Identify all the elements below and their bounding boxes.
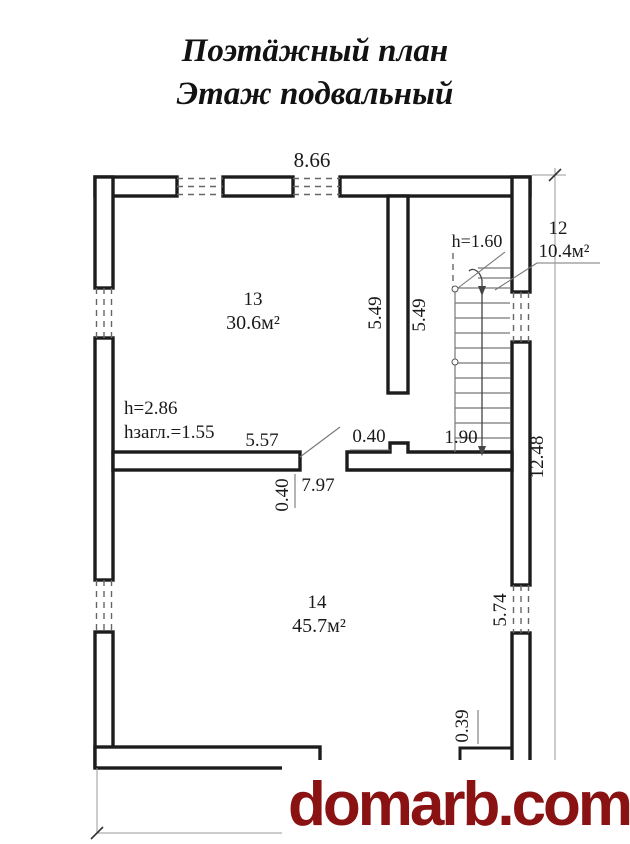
page-title-line1: Поэтäжный план (55, 33, 575, 70)
wall-right-seg1 (512, 177, 530, 292)
dim-opening-width: 0.40 (345, 427, 393, 447)
wall-left-seg2 (95, 338, 113, 580)
dim-stair-wall-right: 5.49 (410, 291, 430, 339)
room12-area: 10.4м² (525, 242, 603, 262)
floor-plan-page: Поэтäжный план Этаж подвальный 13 30.6м²… (0, 0, 630, 844)
wall-left-seg1 (95, 177, 113, 288)
room12-number: 12 (538, 219, 578, 239)
window-right-2 (514, 585, 529, 633)
stair-direction-line (469, 269, 482, 448)
basement-depth-label: hзагл.=1.55 (124, 423, 214, 443)
stair-arrow-top (478, 286, 486, 296)
wall-middle-left (113, 452, 300, 470)
ceiling-height-label: h=2.86 (124, 399, 177, 419)
window-right-1 (514, 292, 529, 342)
dim-stair-wall-left: 5.49 (366, 289, 386, 337)
dim-wall-thickness: 0.40 (273, 471, 293, 519)
leader-doorway (300, 427, 340, 457)
room13-area: 30.6м² (211, 313, 295, 334)
window-left-1 (97, 288, 112, 338)
wall-right-seg3 (512, 633, 530, 772)
stair-node-2 (452, 359, 458, 365)
wall-top-seg2 (223, 177, 293, 196)
wall-top-seg3 (340, 177, 530, 196)
page-title-line2: Этаж подвальный (55, 76, 575, 113)
wall-stairwell-left (388, 196, 408, 393)
dim-room13-width: 5.57 (236, 431, 288, 451)
dim-top-width: 8.66 (283, 149, 341, 171)
dim-stair-hall-width: 1.90 (435, 428, 487, 448)
stair-node-1 (452, 286, 458, 292)
room14-number: 14 (297, 593, 337, 613)
dim-room14-height: 5.74 (491, 586, 511, 634)
leader-lines (295, 252, 600, 744)
floor-plan-drawing (0, 0, 630, 844)
wall-middle-right (347, 443, 512, 470)
window-top-1 (177, 179, 223, 195)
window-top-2 (293, 179, 340, 195)
dim-room14-width: 7.97 (292, 476, 344, 496)
room14-area: 45.7м² (277, 616, 361, 637)
dim-bottom-step: 0.39 (453, 702, 473, 750)
watermark-logo: domarb.com (288, 774, 628, 836)
window-left-2 (97, 580, 112, 632)
room13-number: 13 (233, 290, 273, 310)
dim-total-height: 12.48 (528, 429, 548, 485)
stair-clearance-label: h=1.60 (441, 232, 513, 251)
